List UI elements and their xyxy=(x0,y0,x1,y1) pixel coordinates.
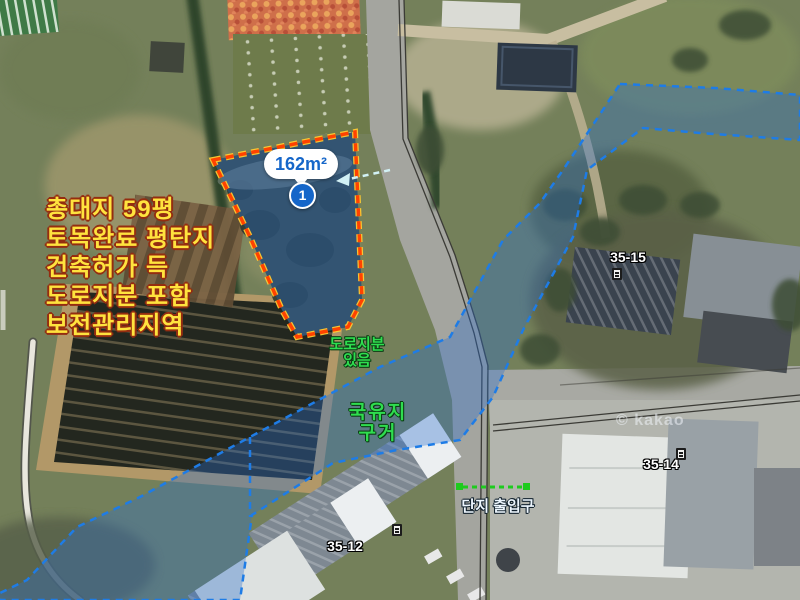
sale-note-line: 건축허가 득 xyxy=(46,253,215,282)
building-icon xyxy=(392,524,402,536)
edge-roof xyxy=(754,468,800,566)
entrance-note: 단지 출입구 xyxy=(448,495,548,516)
annex-roof xyxy=(663,418,758,569)
road-share-note: 도로지분 있음 xyxy=(318,337,396,369)
parcel-marker-1[interactable]: 1 xyxy=(289,182,316,209)
lot-label-35-15: 35-15 xyxy=(610,249,646,265)
building-icon xyxy=(612,268,622,280)
sale-note-line: 토목완료 평탄지 xyxy=(46,224,215,253)
building-icon xyxy=(676,448,686,460)
lot-label-35-14: 35-14 xyxy=(643,456,679,472)
sale-note-line: 보전관리지역 xyxy=(46,311,215,340)
shed-roof xyxy=(149,41,185,73)
sale-note-line: 도로지분 포함 xyxy=(46,282,215,311)
greenhouse-roof xyxy=(0,0,59,36)
sale-notes: 총대지 59평 토목완료 평탄지 건축허가 득 도로지분 포함 보전관리지역 xyxy=(46,195,215,340)
sale-note-line: 총대지 59평 xyxy=(46,195,215,224)
waterway-note: 국유지 구거 xyxy=(337,402,419,444)
white-building-top xyxy=(442,1,521,30)
parcel-area-bubble[interactable]: 162m² xyxy=(264,149,338,179)
lot-label-35-12: 35-12 xyxy=(327,538,363,554)
map-watermark: © kakao xyxy=(616,412,685,430)
aerial-map-canvas[interactable]: 총대지 59평 토목완료 평탄지 건축허가 득 도로지분 포함 보전관리지역 1… xyxy=(0,0,800,600)
